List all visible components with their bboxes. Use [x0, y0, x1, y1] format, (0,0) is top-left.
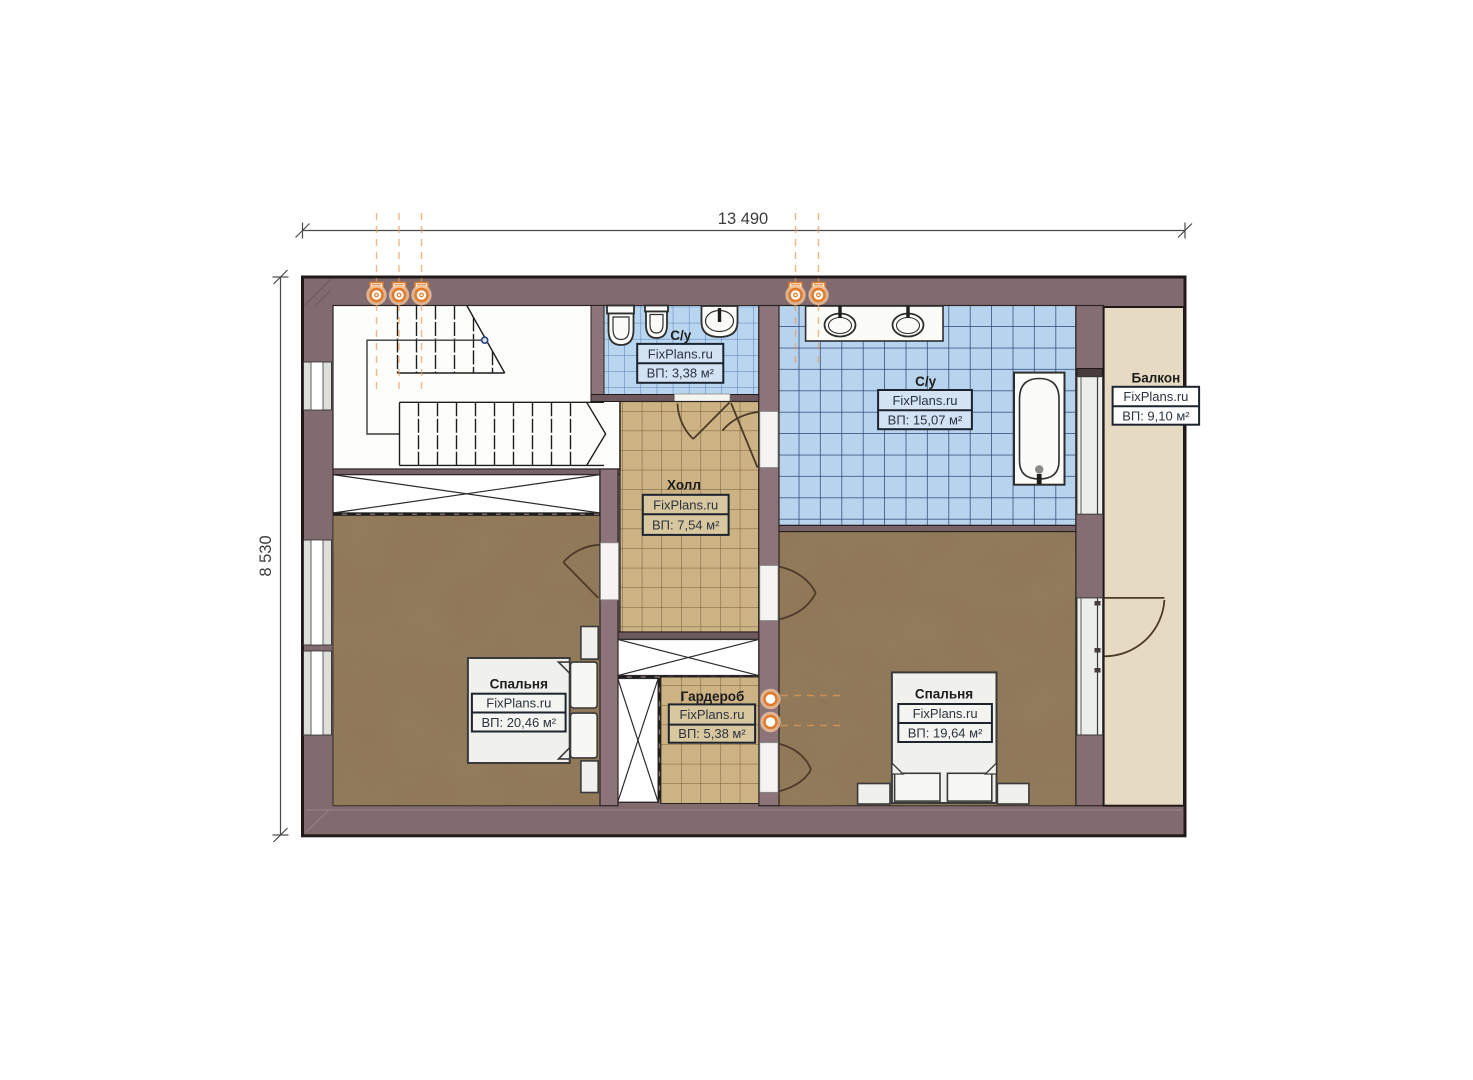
- svg-text:8 530: 8 530: [257, 535, 275, 576]
- svg-text:Спальня: Спальня: [915, 687, 973, 702]
- svg-text:ВП: 3,38 м²: ВП: 3,38 м²: [647, 366, 715, 381]
- svg-text:ВП: 9,10 м²: ВП: 9,10 м²: [1122, 408, 1190, 423]
- svg-text:FixPlans.ru: FixPlans.ru: [648, 346, 713, 361]
- svg-text:С/у: С/у: [670, 328, 692, 343]
- svg-text:С/у: С/у: [915, 374, 937, 389]
- svg-text:ВП: 19,64 м²: ВП: 19,64 м²: [908, 726, 983, 741]
- svg-text:FixPlans.ru: FixPlans.ru: [913, 706, 978, 721]
- svg-text:FixPlans.ru: FixPlans.ru: [1123, 389, 1188, 404]
- svg-text:ВП: 7,54 м²: ВП: 7,54 м²: [652, 518, 720, 533]
- svg-text:Гардероб: Гардероб: [681, 689, 745, 704]
- svg-text:Балкон: Балкон: [1132, 371, 1181, 386]
- svg-text:Холл: Холл: [667, 478, 701, 493]
- svg-text:FixPlans.ru: FixPlans.ru: [679, 707, 744, 722]
- svg-text:13 490: 13 490: [718, 210, 768, 228]
- svg-text:ВП: 5,38 м²: ВП: 5,38 м²: [678, 726, 746, 741]
- svg-text:FixPlans.ru: FixPlans.ru: [892, 393, 957, 408]
- svg-text:ВП: 15,07 м²: ВП: 15,07 м²: [888, 412, 963, 427]
- svg-text:FixPlans.ru: FixPlans.ru: [486, 696, 551, 711]
- svg-text:Спальня: Спальня: [490, 677, 548, 692]
- svg-text:ВП: 20,46 м²: ВП: 20,46 м²: [481, 715, 556, 730]
- svg-text:FixPlans.ru: FixPlans.ru: [653, 497, 718, 512]
